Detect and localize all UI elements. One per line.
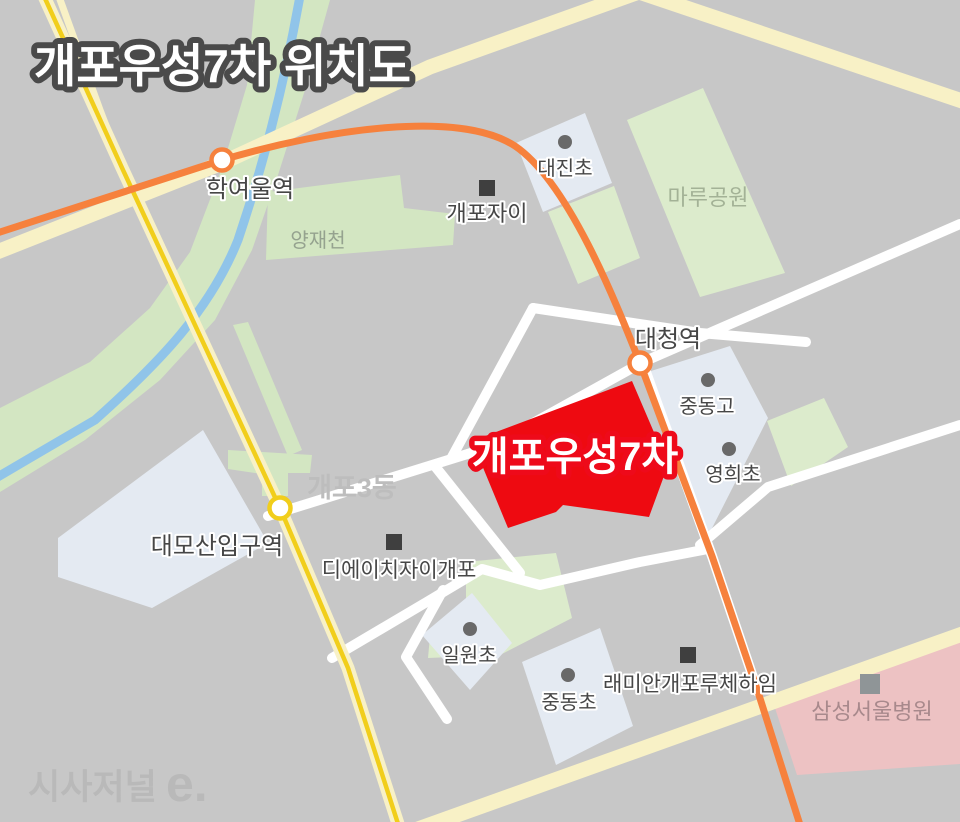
watermark-brand: 시사저널 [28, 768, 157, 807]
map-canvas: 학여울역 대청역 대모산입구역 대진초 중동고 영희초 일원초 중동초 개포자이… [0, 0, 960, 822]
jungdong-high-dot-icon [701, 373, 715, 387]
watermark-suffix: e. [166, 756, 208, 812]
daecheong-station-label: 대청역 [635, 326, 701, 353]
daemosan-station-label: 대모산입구역 [151, 533, 283, 560]
raemian-label: 래미안개포루체하임 [603, 673, 777, 696]
hakyeoul-station-label: 학여울역 [206, 176, 294, 203]
ilwon-dot-icon [463, 622, 477, 636]
target-complex-label: 개포우성7차 [472, 435, 678, 479]
samsung-hospital-label: 삼성서울병원 [811, 699, 932, 724]
raemian-square-icon [680, 647, 696, 663]
gaepo3dong-label: 개포3동 [307, 473, 397, 503]
daecheong-station-icon [630, 353, 651, 374]
dh-xi-square-icon [386, 534, 402, 550]
maru-park-label: 마루공원 [668, 185, 749, 210]
yangjaecheon-label: 양재천 [290, 229, 345, 252]
samsung-hospital-square-icon [860, 674, 880, 694]
jungdong-elem-dot-icon [561, 668, 575, 682]
gaepo-xi-label: 개포자이 [447, 201, 528, 226]
jungdong-high-label: 중동고 [679, 396, 734, 418]
dh-xi-label: 디에이치자이개포 [322, 559, 477, 582]
yeonghui-school-label: 영희초 [705, 463, 760, 486]
daejin-school-label: 대진초 [537, 157, 592, 180]
ilwon-school-label: 일원초 [441, 644, 496, 667]
yeonghui-dot-icon [722, 442, 736, 456]
daemosan-station-icon [270, 498, 291, 519]
gaepo-xi-square-icon [479, 180, 495, 196]
location-map: 학여울역 대청역 대모산입구역 대진초 중동고 영희초 일원초 중동초 개포자이… [0, 0, 960, 822]
daejin-dot-icon [558, 135, 572, 149]
hakyeoul-station-icon [212, 150, 233, 171]
map-title: 개포우성7차 위치도 [34, 40, 411, 92]
jungdong-elem-label: 중동초 [541, 692, 596, 714]
